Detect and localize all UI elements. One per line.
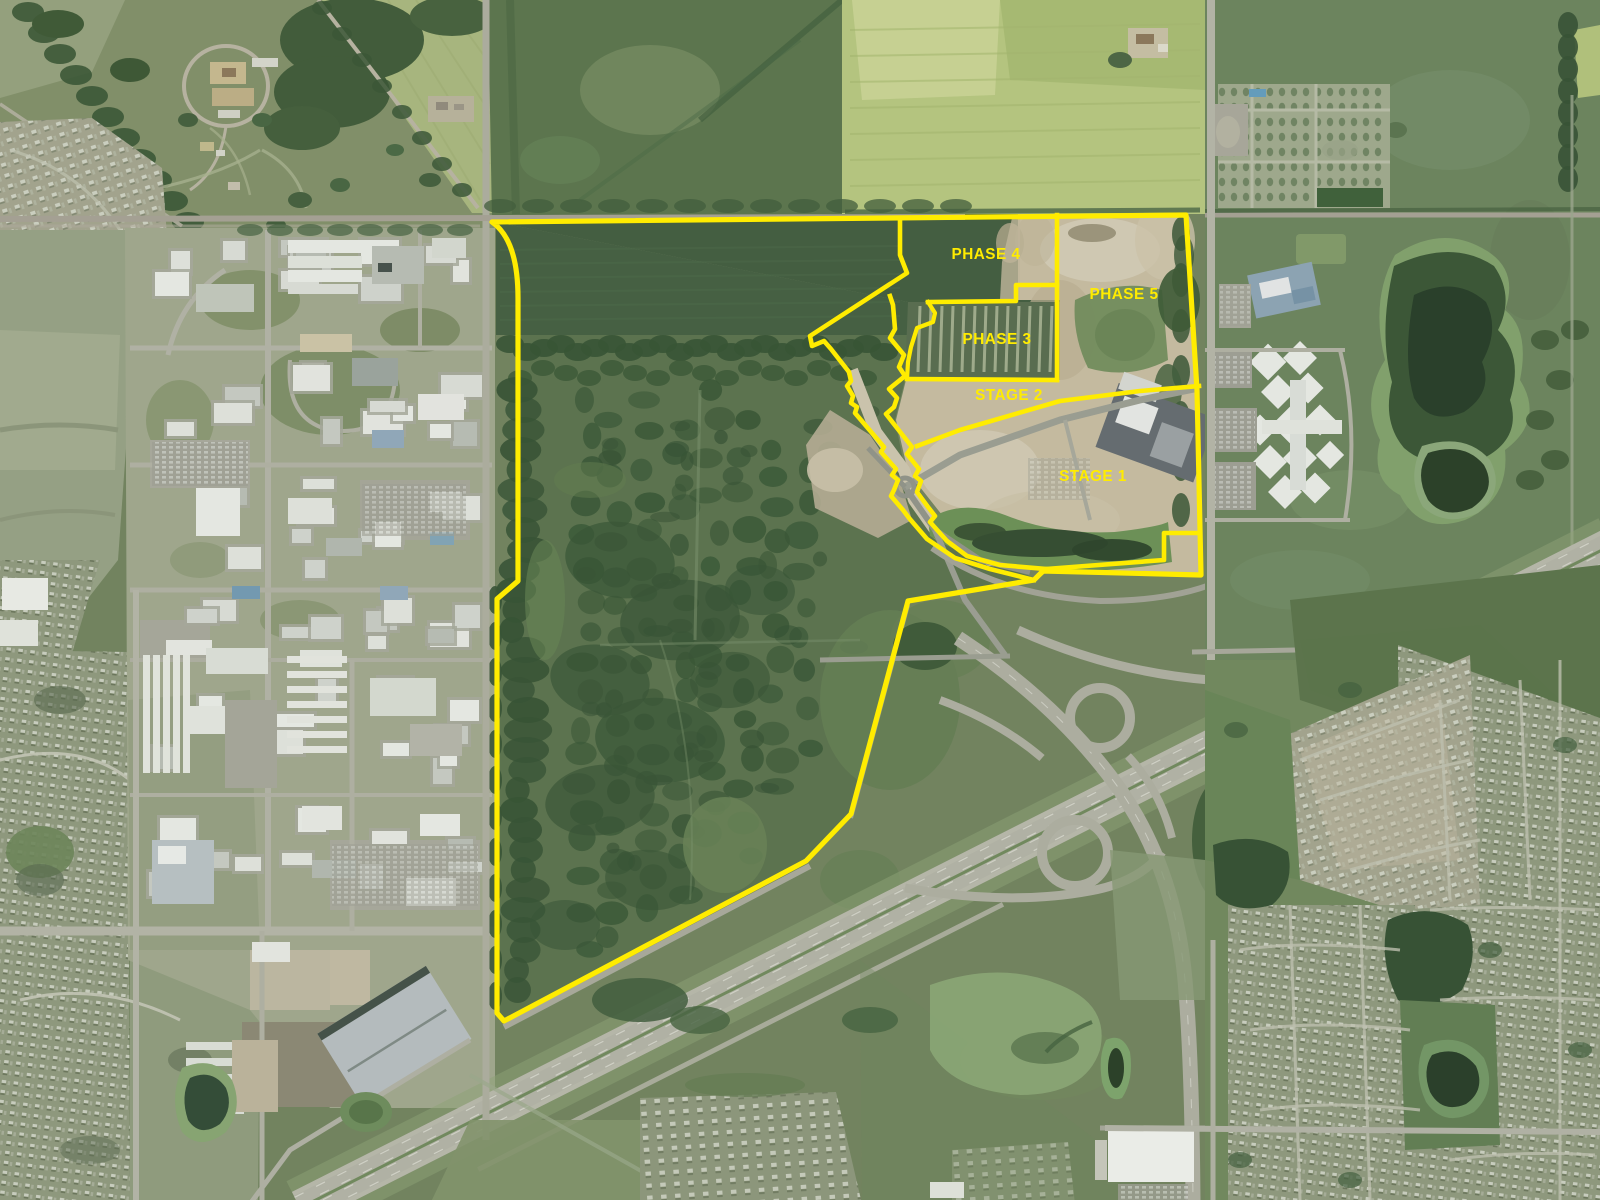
svg-text:STAGE 2: STAGE 2 xyxy=(975,387,1043,404)
svg-text:STAGE 1: STAGE 1 xyxy=(1059,468,1127,485)
svg-text:PHASE 5: PHASE 5 xyxy=(1090,286,1159,303)
svg-text:PHASE 4: PHASE 4 xyxy=(952,246,1021,263)
svg-text:PHASE 3: PHASE 3 xyxy=(963,331,1032,348)
